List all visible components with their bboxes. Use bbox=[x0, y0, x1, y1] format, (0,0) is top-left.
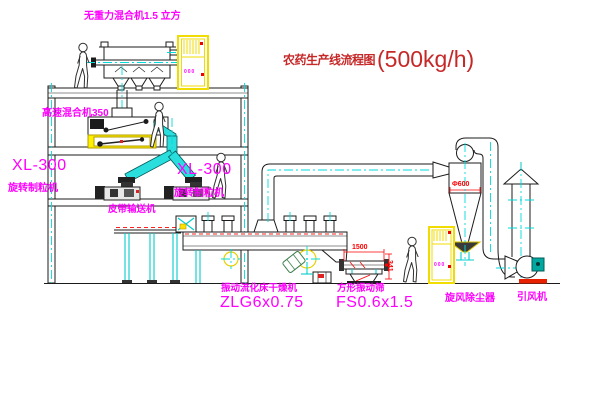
cabinet-top-display: 000 bbox=[184, 70, 195, 75]
section-target-symbol bbox=[221, 249, 241, 269]
dimension-screen-height: 341 bbox=[386, 260, 393, 272]
person-roof bbox=[75, 43, 90, 88]
label-cyclone: 旋风除尘器 bbox=[445, 294, 495, 304]
title-capacity: (500kg/h) bbox=[377, 46, 474, 73]
label-granulator-right-model: XL-300 bbox=[177, 162, 232, 178]
label-dryer-name: 振动流化床干燥机 bbox=[221, 284, 297, 294]
label-granulator-left-model: XL-300 bbox=[12, 158, 67, 174]
fluid-bed-dryer bbox=[176, 212, 347, 283]
granulator-left bbox=[95, 182, 140, 200]
person-ground bbox=[404, 237, 419, 282]
drawing-title: 农药生产线流程图 (500kg/h) bbox=[283, 46, 474, 73]
dimension-cyclone-diameter: Φ600 bbox=[452, 181, 469, 188]
label-belt-conveyor: 皮带输送机 bbox=[108, 205, 156, 215]
label-granulator-right-name: 旋转制粒机 bbox=[174, 189, 224, 199]
induced-draft-fan bbox=[516, 256, 547, 284]
label-dryer-model: ZLG6x0.75 bbox=[220, 295, 304, 311]
label-granulator-left-name: 旋转制粒机 bbox=[8, 184, 58, 194]
pesticide-line-flow-drawing: 农药生产线流程图 (500kg/h) 无重力混合机1.5 立方 高速混合机350… bbox=[0, 0, 600, 403]
cabinet-bottom-display: 000 bbox=[434, 263, 445, 268]
label-screen-name: 方形振动筛 bbox=[337, 284, 385, 294]
control-cabinet-top bbox=[178, 36, 208, 89]
label-fan: 引风机 bbox=[517, 293, 547, 303]
sample-barrel bbox=[282, 251, 306, 274]
control-cabinet-bottom bbox=[429, 227, 454, 283]
label-screen-model: FS0.6x1.5 bbox=[336, 295, 413, 311]
dimension-screen-width: 1500 bbox=[352, 244, 368, 251]
label-high-speed-mixer: 高速混合机350 bbox=[42, 109, 109, 119]
gravity-free-mixer bbox=[86, 42, 188, 90]
belt-conveyor bbox=[114, 228, 181, 284]
vibrating-screen bbox=[339, 259, 389, 284]
label-gravity-mixer: 无重力混合机1.5 立方 bbox=[84, 12, 181, 22]
title-text: 农药生产线流程图 bbox=[283, 51, 375, 68]
